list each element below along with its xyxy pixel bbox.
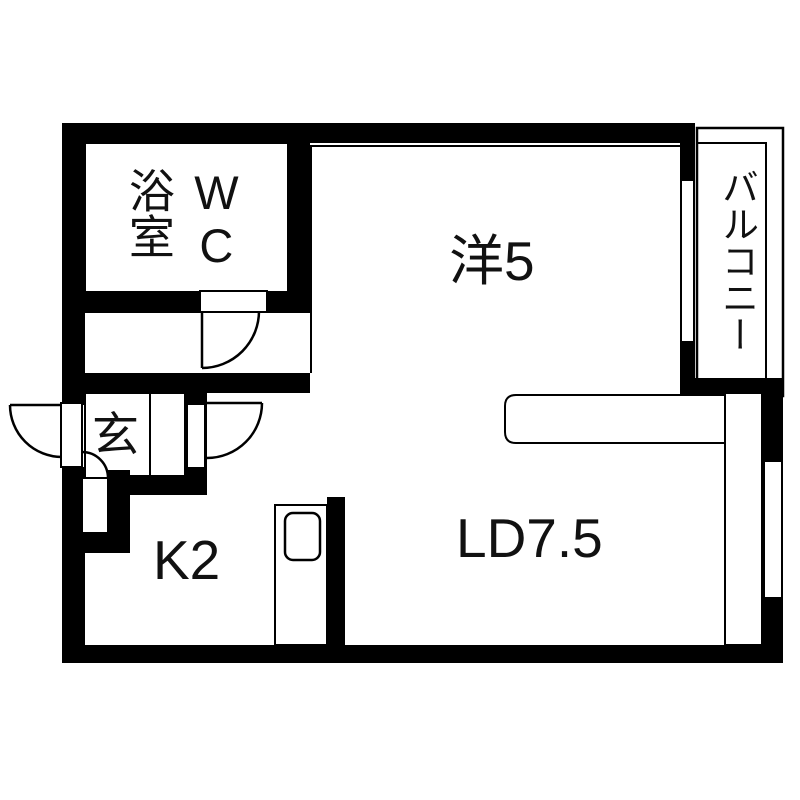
wall-hall-bottom [62, 373, 310, 393]
wc-door-opening [200, 291, 267, 312]
entrance-label: 玄 [92, 411, 139, 460]
ld-window [764, 461, 782, 598]
wall-kitchen-stub [327, 497, 345, 645]
wc-door-swing [202, 311, 259, 368]
floor-plan-drawing [0, 0, 800, 800]
entrance-door-opening [187, 404, 205, 468]
western-room-label: 洋5 [449, 233, 535, 290]
balcony-label: バルコニー [717, 168, 755, 353]
floor-plan: 浴室 WC 洋5 バルコニー 玄 K2 LD7.5 [0, 0, 800, 800]
wall-bottom [62, 645, 783, 663]
balcony-window [681, 180, 694, 342]
wall-ld-right-upper [761, 398, 783, 462]
ld-counter-column [725, 393, 762, 645]
entrance-step-outline [150, 393, 185, 478]
living-dining-label: LD7.5 [456, 510, 603, 567]
wall-right-upper [680, 143, 695, 180]
wall-closet-bottom [82, 533, 108, 553]
wall-top [62, 123, 695, 143]
ld-counter-bar [505, 395, 725, 443]
wall-left-upper [62, 123, 85, 405]
front-door-opening [61, 403, 82, 467]
kitchen-label: K2 [153, 532, 220, 589]
entrance-inner-door-swing [207, 403, 262, 458]
wall-closet-right [108, 470, 130, 553]
wall-bath-right [288, 123, 310, 310]
wall-ld-right-lower [761, 597, 783, 645]
bathroom-outline [85, 143, 288, 292]
front-door-swing [10, 405, 62, 457]
bath-label: 浴室 [124, 167, 172, 259]
wall-right-mid [680, 342, 695, 378]
wc-label: WC [191, 166, 240, 272]
closet-opening [82, 478, 108, 533]
wall-bath-bottom [85, 292, 310, 313]
